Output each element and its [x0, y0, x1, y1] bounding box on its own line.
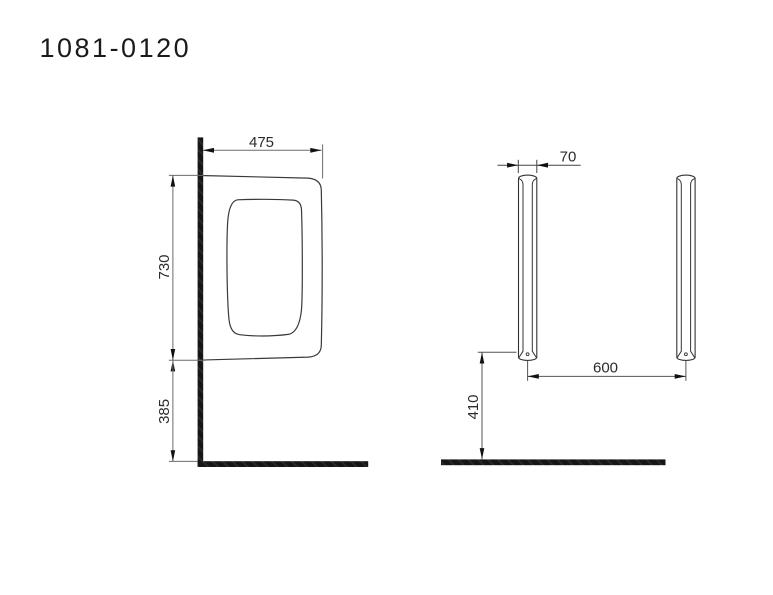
svg-text:410: 410: [465, 394, 482, 419]
svg-text:730: 730: [156, 254, 173, 279]
svg-text:385: 385: [156, 399, 173, 424]
svg-text:475: 475: [249, 134, 274, 151]
svg-text:70: 70: [560, 148, 577, 165]
svg-text:600: 600: [593, 360, 618, 377]
svg-text:1081-0120: 1081-0120: [40, 33, 192, 63]
